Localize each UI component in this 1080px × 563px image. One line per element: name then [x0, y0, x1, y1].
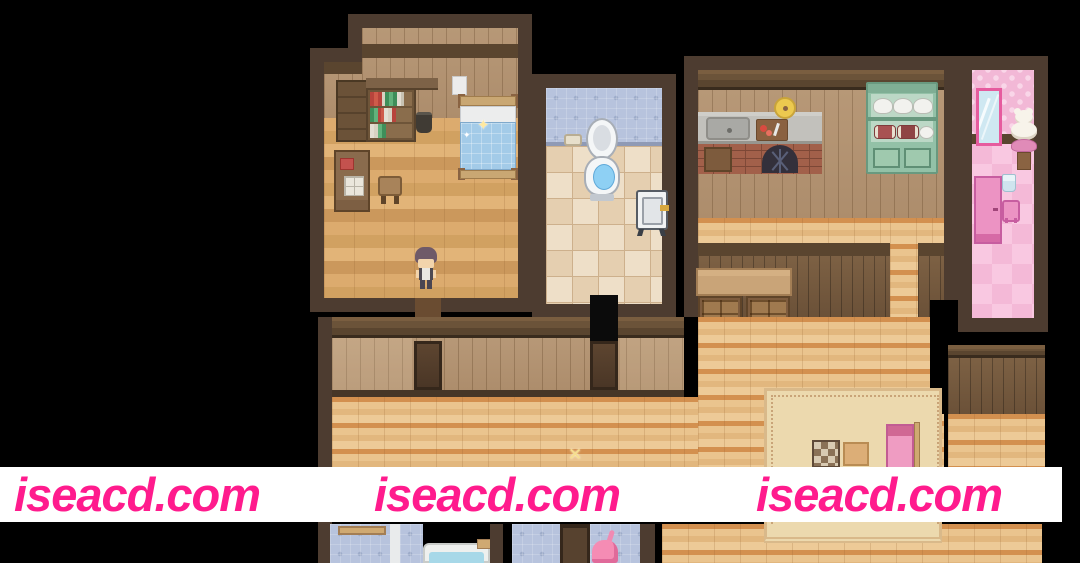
wardrobe-handle	[993, 208, 998, 211]
tomato	[766, 130, 772, 136]
appliance-body	[636, 190, 668, 230]
toilet-bowl	[584, 156, 620, 196]
stool	[378, 176, 402, 204]
mirror	[976, 88, 1002, 146]
hall-beam	[332, 317, 684, 338]
character-body	[419, 268, 433, 280]
pedestal-post	[1017, 152, 1031, 170]
red-sign	[340, 158, 354, 170]
cooking-pot	[774, 97, 796, 119]
appliance-handle	[660, 205, 669, 211]
hall-wall-highlight	[620, 338, 684, 390]
character-arm	[433, 270, 436, 278]
bear-body	[1011, 122, 1037, 140]
bookshelf	[366, 88, 416, 142]
ham	[897, 125, 919, 139]
futon-side-rail	[914, 422, 920, 472]
watermark-text: iseacd.com	[374, 467, 620, 522]
pink-stool-leg	[1014, 218, 1017, 223]
small-vase	[1002, 174, 1016, 192]
stool-leg	[394, 196, 399, 204]
pink-wardrobe	[974, 176, 1002, 244]
bedroom-wall-beam	[362, 44, 518, 58]
bowl	[913, 98, 933, 114]
appliance-leg	[659, 229, 666, 236]
stool-top	[378, 176, 402, 196]
npc-pink-character[interactable]	[592, 530, 620, 563]
lower-wall	[640, 524, 655, 563]
character-face	[418, 259, 434, 268]
watermark-text: iseacd.com	[756, 467, 1002, 522]
shower-divider	[390, 524, 400, 563]
lower-wall	[490, 524, 503, 563]
bedroom-wall-cap	[324, 62, 362, 74]
character-legs	[420, 280, 432, 289]
character-arm	[416, 270, 419, 278]
kitchen-hutch	[866, 82, 938, 174]
toilet[interactable]	[582, 118, 622, 204]
wardrobe	[334, 150, 370, 212]
ham	[874, 125, 896, 139]
appliance-leg	[637, 229, 644, 236]
right-room-floor	[948, 414, 1045, 470]
towel-rack	[338, 526, 386, 535]
wardrobe-base	[976, 234, 1000, 242]
appliance-door	[642, 197, 663, 225]
toilet-lid-inner	[593, 125, 611, 151]
plate	[919, 126, 934, 139]
x-sparkle-icon[interactable]: ✕	[568, 446, 582, 463]
lower-bath-wall	[400, 524, 423, 563]
book-row	[370, 108, 412, 122]
rug-bottom-part	[764, 524, 942, 543]
bed-footboard	[460, 170, 516, 179]
kitchen-south-beam-b	[918, 243, 944, 256]
shelf-unit	[336, 80, 368, 142]
kitchen-south-beam	[698, 243, 890, 256]
hall-door-left[interactable]	[414, 341, 442, 390]
bathtub-water	[429, 552, 484, 563]
bed-headboard	[460, 96, 516, 106]
game-viewport[interactable]: ✦ ✦	[0, 0, 1080, 563]
hall-wall-highlight	[332, 338, 412, 390]
hutch-shelf-hams	[871, 121, 933, 142]
hutch-cabinet-door	[904, 148, 931, 168]
toilet-lid	[586, 118, 618, 160]
futon-pillow	[888, 426, 912, 436]
hutch-shelf-bowls	[871, 94, 933, 117]
right-room-beam	[948, 345, 1045, 358]
player-character[interactable]	[414, 247, 438, 291]
hall-wall-base-edge	[332, 390, 684, 397]
book-row	[370, 124, 412, 138]
npc-hair	[592, 540, 618, 563]
hanging-basket	[416, 112, 432, 133]
watermark-text: iseacd.com	[14, 467, 260, 522]
sparkle-icon[interactable]: ✦	[477, 118, 490, 133]
bowl	[873, 98, 893, 114]
lower-door[interactable]	[560, 524, 590, 563]
wall-gap	[684, 317, 698, 397]
white-drawers	[344, 176, 364, 196]
floor-mat	[843, 442, 869, 466]
small-appliance	[636, 190, 668, 236]
hall-door-middle[interactable]	[590, 341, 618, 390]
toilet-base	[590, 194, 614, 201]
bathtub-faucet	[477, 539, 491, 549]
hutch-cabinet-door	[873, 148, 900, 168]
hall-floor	[332, 397, 684, 470]
wall-note-paper	[452, 76, 467, 95]
lower-room-wall	[512, 524, 560, 563]
knife	[773, 123, 780, 136]
oven-arch	[762, 145, 798, 173]
pink-futon	[886, 424, 920, 470]
sparkle-icon: ✦	[463, 131, 471, 140]
bedroom-door-gap[interactable]	[415, 298, 441, 317]
right-room-wall	[948, 358, 1045, 414]
teddy-bear-stand	[1008, 108, 1040, 170]
kitchen-sink	[706, 117, 750, 140]
bear-pedestal	[1011, 139, 1037, 152]
corridor-floor	[890, 218, 918, 317]
pink-stool-leg	[1005, 218, 1008, 223]
stool-leg	[381, 196, 386, 204]
dresser-top-board	[696, 268, 792, 296]
hall-floor-join	[684, 397, 698, 470]
sink-drain	[727, 128, 732, 133]
soap-tray	[564, 134, 582, 146]
pot-lid-knob	[783, 106, 788, 111]
hutch-top-board	[868, 84, 936, 93]
cutting-board	[756, 119, 788, 141]
wardrobe-base	[336, 200, 368, 210]
checker-cushion	[812, 440, 840, 468]
pink-stool	[1002, 200, 1020, 222]
toilet-door-gap	[590, 295, 618, 341]
toilet-water	[593, 164, 615, 190]
book-row	[370, 92, 412, 106]
bowl	[893, 98, 913, 114]
base-cabinet-door	[704, 147, 732, 172]
